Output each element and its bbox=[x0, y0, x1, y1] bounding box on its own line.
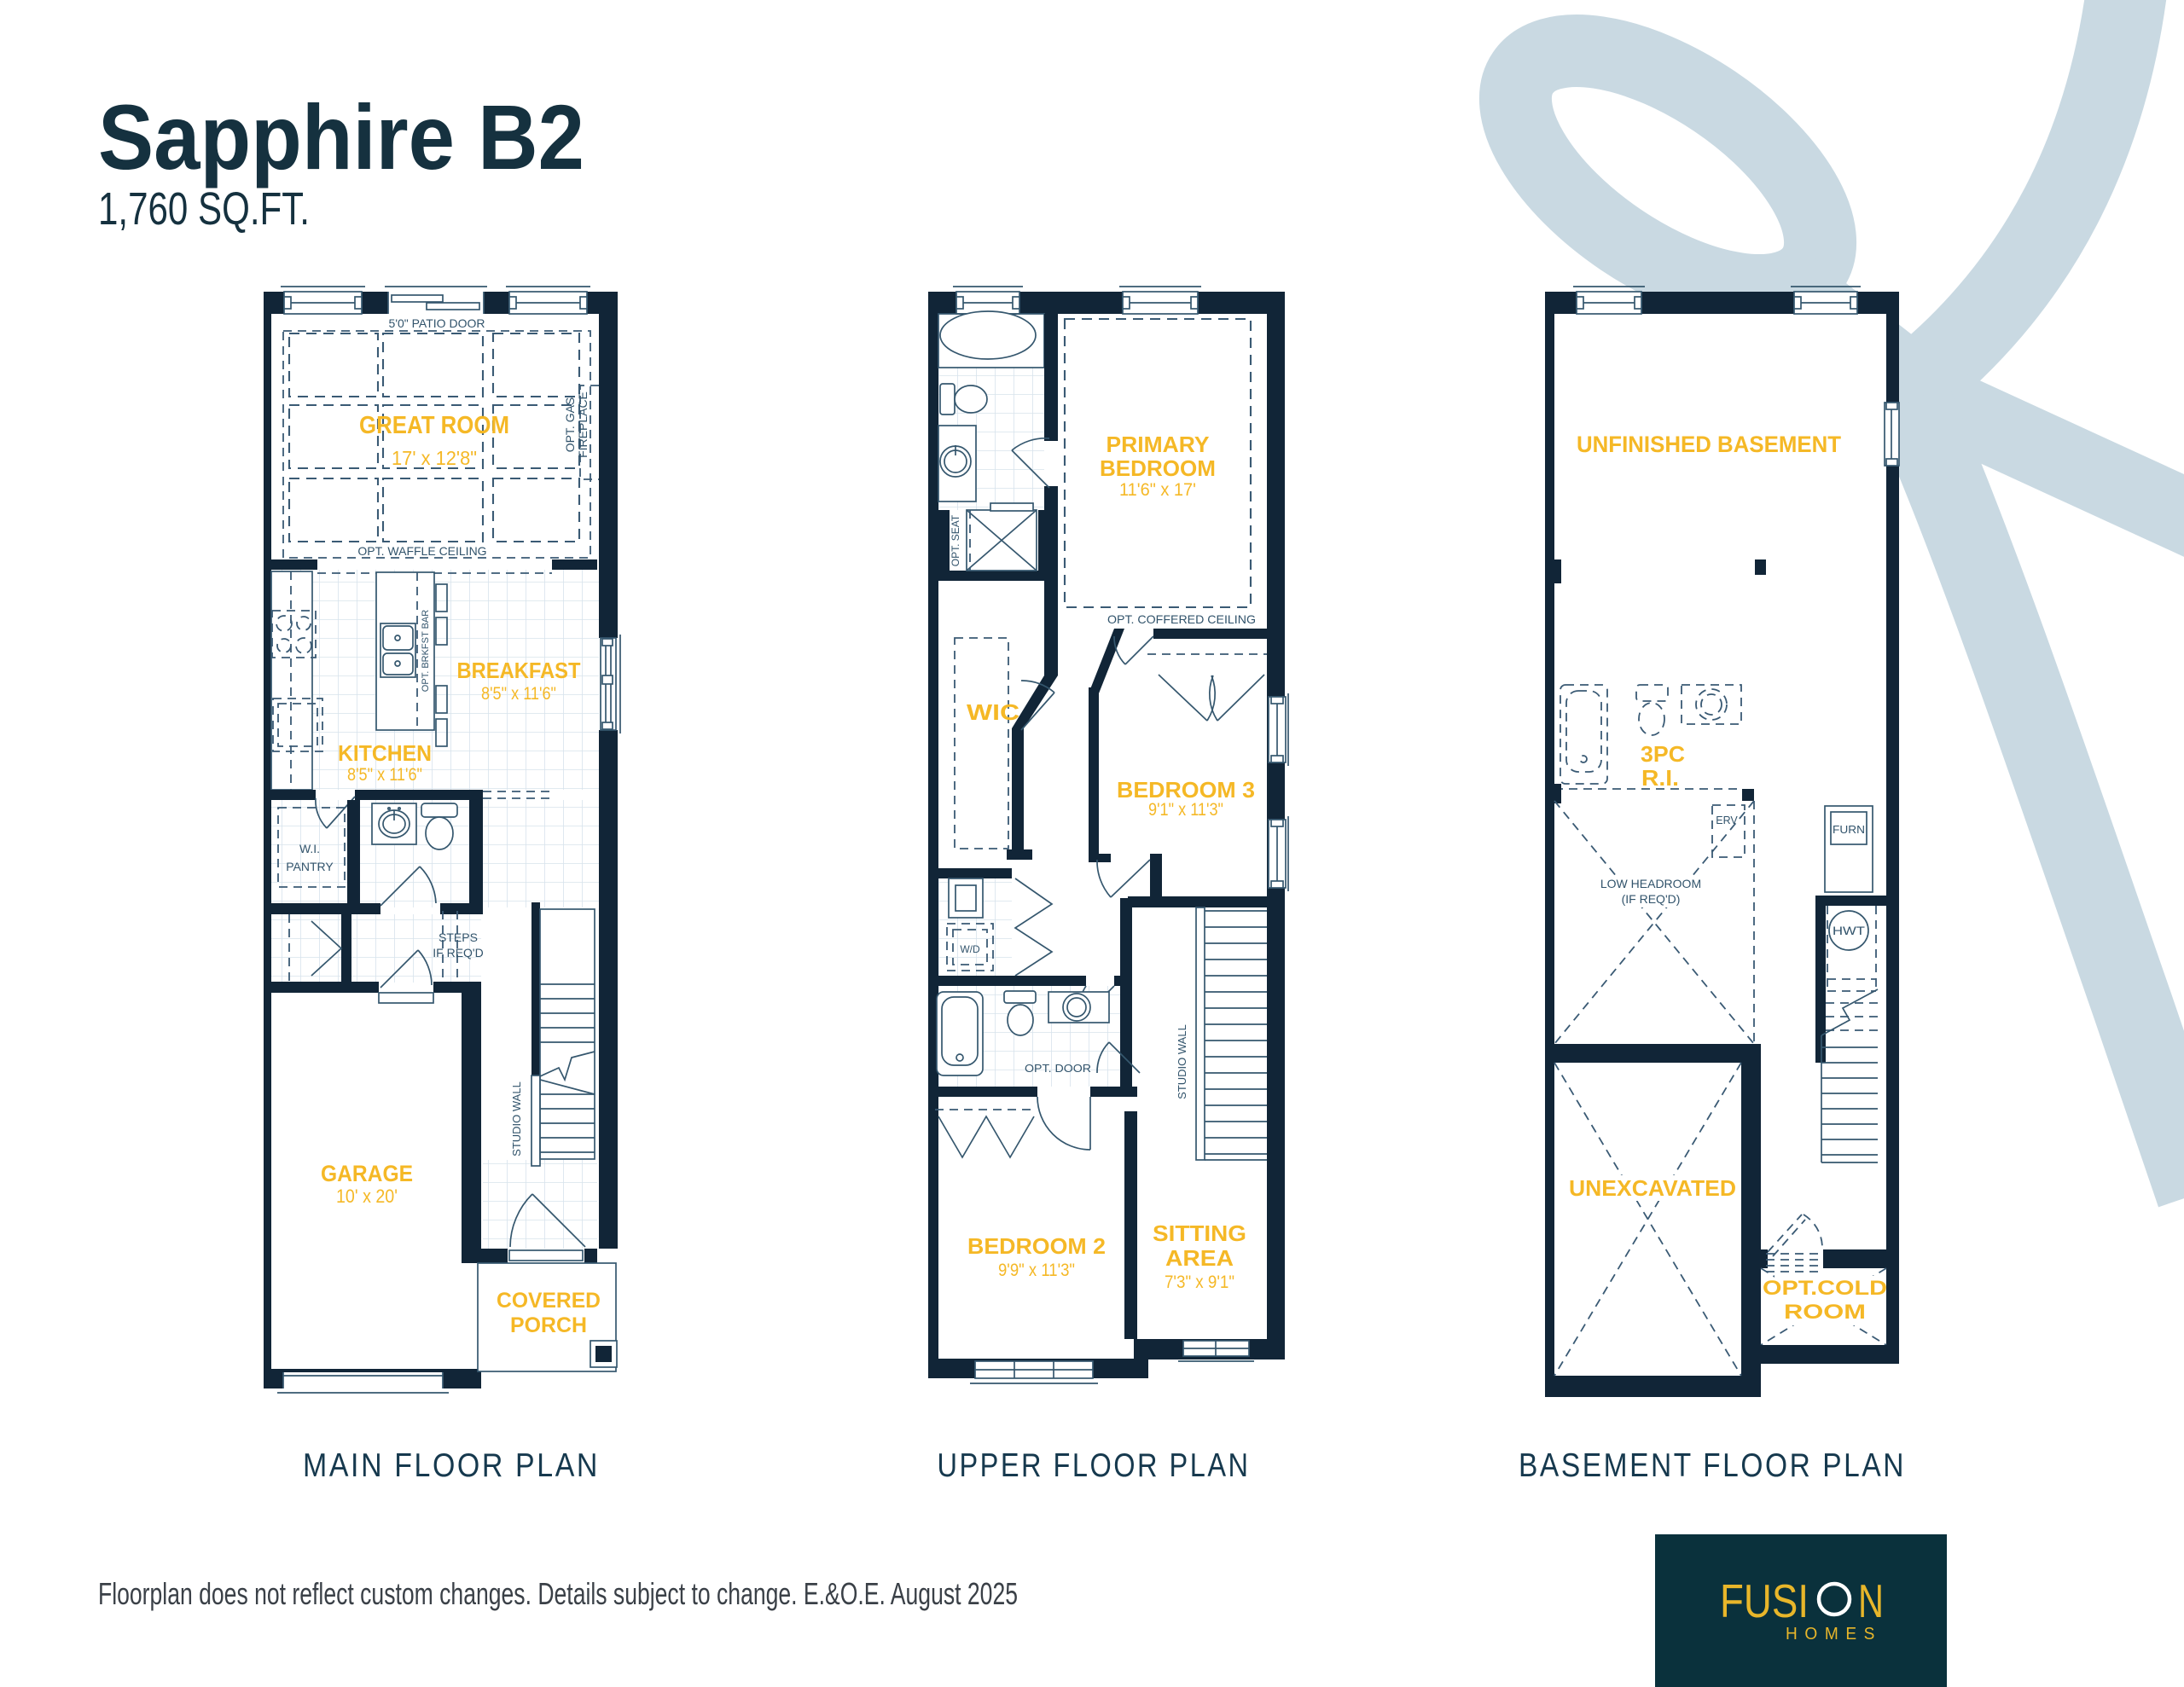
svg-text:GREAT ROOM: GREAT ROOM bbox=[359, 412, 509, 439]
svg-text:UNEXCAVATED: UNEXCAVATED bbox=[1569, 1175, 1736, 1201]
svg-text:Floorplan does not reflect cus: Floorplan does not reflect custom change… bbox=[98, 1576, 1018, 1611]
svg-text:AREA: AREA bbox=[1165, 1245, 1234, 1271]
svg-text:9'1" x 11'3": 9'1" x 11'3" bbox=[1148, 800, 1223, 820]
svg-text:FUSI: FUSI bbox=[1720, 1574, 1809, 1627]
svg-text:STUDIO WALL: STUDIO WALL bbox=[1176, 1024, 1188, 1099]
svg-text:LOW HEADROOM: LOW HEADROOM bbox=[1600, 877, 1701, 890]
svg-text:5'0" PATIO DOOR: 5'0" PATIO DOOR bbox=[389, 316, 485, 330]
svg-text:COVERED: COVERED bbox=[497, 1289, 601, 1313]
svg-text:BEDROOM: BEDROOM bbox=[1100, 455, 1216, 481]
svg-text:N: N bbox=[1858, 1574, 1884, 1627]
svg-text:17' x 12'8": 17' x 12'8" bbox=[392, 447, 477, 469]
svg-text:BEDROOM 2: BEDROOM 2 bbox=[967, 1233, 1106, 1259]
svg-text:W.I.: W.I. bbox=[299, 842, 320, 855]
svg-text:3PC: 3PC bbox=[1641, 741, 1685, 767]
svg-text:Sapphire B2: Sapphire B2 bbox=[98, 85, 584, 188]
svg-text:OPT.COLD: OPT.COLD bbox=[1763, 1277, 1887, 1300]
svg-text:10' x 20': 10' x 20' bbox=[336, 1186, 398, 1207]
svg-text:WIC: WIC bbox=[967, 699, 1019, 725]
svg-text:PANTRY: PANTRY bbox=[286, 860, 334, 873]
svg-text:OPT. GAS: OPT. GAS bbox=[563, 397, 577, 453]
svg-text:STUDIO WALL: STUDIO WALL bbox=[510, 1081, 523, 1157]
svg-text:PRIMARY: PRIMARY bbox=[1107, 432, 1210, 457]
svg-text:W/D: W/D bbox=[960, 943, 980, 955]
svg-text:IF REQ'D: IF REQ'D bbox=[433, 946, 483, 959]
svg-text:R.I.: R.I. bbox=[1641, 765, 1679, 791]
svg-text:GARAGE: GARAGE bbox=[321, 1161, 413, 1186]
svg-text:8'5" x 11'6": 8'5" x 11'6" bbox=[347, 765, 422, 785]
svg-text:8'5" x 11'6": 8'5" x 11'6" bbox=[481, 684, 556, 704]
svg-text:KITCHEN: KITCHEN bbox=[338, 740, 432, 766]
svg-text:ROOM: ROOM bbox=[1784, 1301, 1866, 1324]
svg-text:FURN: FURN bbox=[1833, 823, 1865, 836]
svg-text:7'3" x 9'1": 7'3" x 9'1" bbox=[1165, 1272, 1234, 1292]
svg-text:SITTING: SITTING bbox=[1153, 1220, 1246, 1246]
svg-text:OPT. COFFERED CEILING: OPT. COFFERED CEILING bbox=[1107, 612, 1256, 626]
svg-text:OPT. WAFFLE CEILING: OPT. WAFFLE CEILING bbox=[357, 544, 486, 558]
svg-text:MAIN FLOOR PLAN: MAIN FLOOR PLAN bbox=[303, 1447, 600, 1484]
svg-text:11'6" x 17': 11'6" x 17' bbox=[1119, 480, 1196, 500]
svg-text:HWT: HWT bbox=[1833, 925, 1865, 937]
svg-text:BASEMENT FLOOR PLAN: BASEMENT FLOOR PLAN bbox=[1519, 1447, 1906, 1484]
svg-text:UNFINISHED BASEMENT: UNFINISHED BASEMENT bbox=[1577, 432, 1841, 457]
svg-text:OPT. SEAT: OPT. SEAT bbox=[950, 514, 961, 566]
svg-text:OPT. DOOR: OPT. DOOR bbox=[1025, 1062, 1091, 1075]
svg-text:OPT. BRKFST BAR: OPT. BRKFST BAR bbox=[421, 610, 431, 692]
svg-text:UPPER FLOOR PLAN: UPPER FLOOR PLAN bbox=[938, 1447, 1251, 1484]
svg-text:BEDROOM 3: BEDROOM 3 bbox=[1117, 777, 1255, 803]
svg-text:STEPS: STEPS bbox=[439, 930, 478, 944]
svg-text:HOMES: HOMES bbox=[1786, 1625, 1882, 1644]
svg-text:BREAKFAST: BREAKFAST bbox=[457, 658, 581, 683]
svg-text:FIREPLACE: FIREPLACE bbox=[576, 391, 590, 458]
svg-text:1,760 SQ.FT.: 1,760 SQ.FT. bbox=[98, 183, 310, 235]
svg-text:PORCH: PORCH bbox=[510, 1313, 587, 1337]
svg-text:9'9" x 11'3": 9'9" x 11'3" bbox=[998, 1261, 1075, 1280]
svg-text:(IF REQ'D): (IF REQ'D) bbox=[1622, 892, 1681, 906]
svg-text:ERV: ERV bbox=[1716, 815, 1738, 826]
